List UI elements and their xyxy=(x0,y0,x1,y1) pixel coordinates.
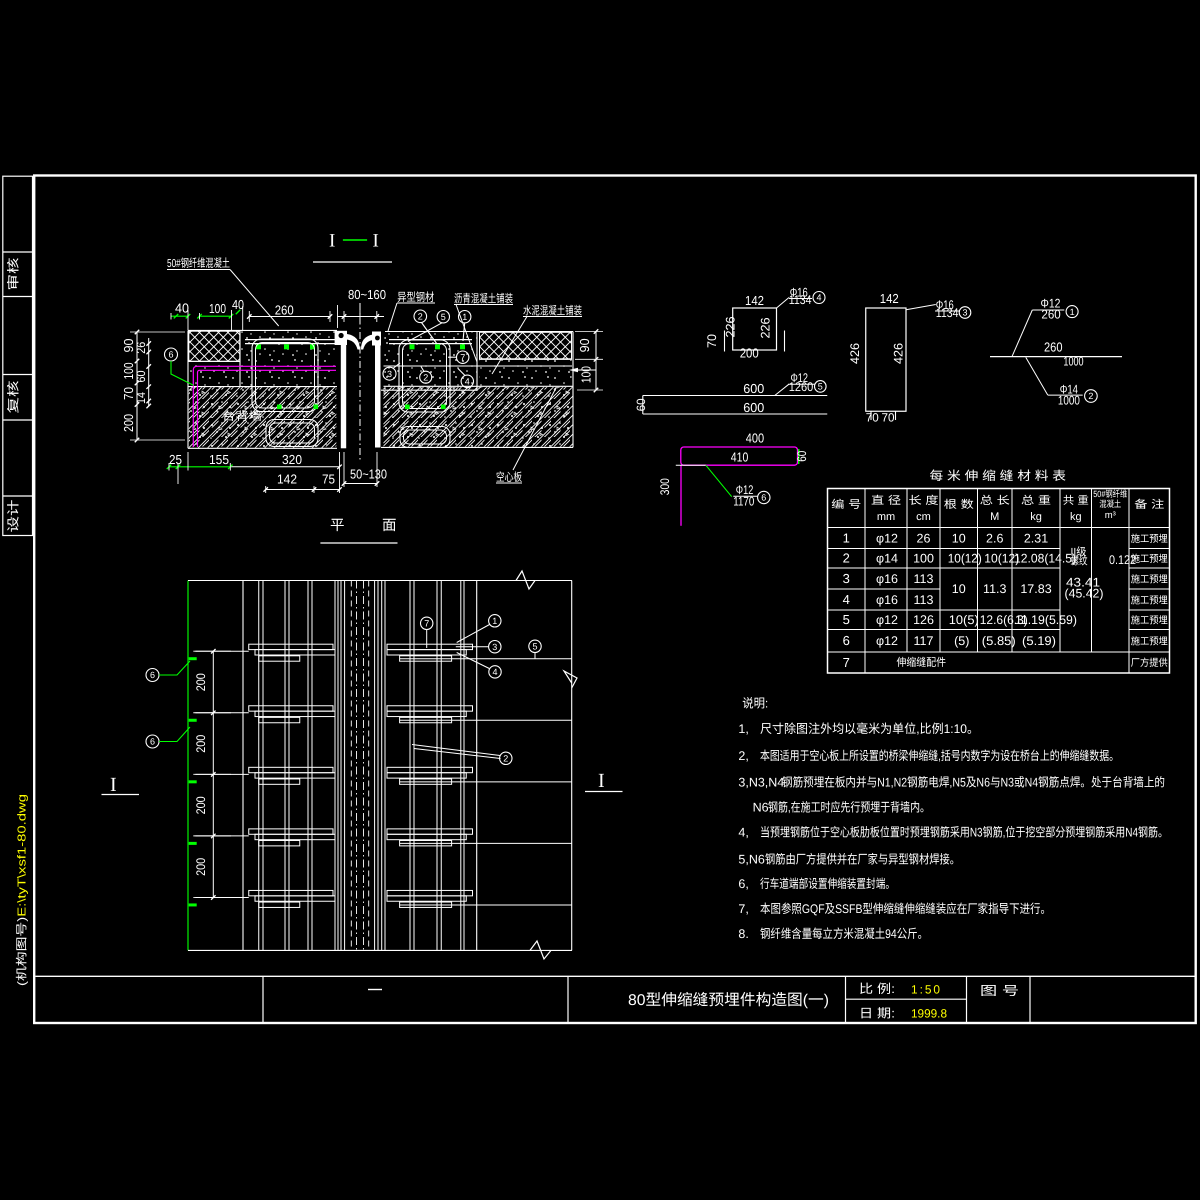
svg-text:90: 90 xyxy=(577,338,592,352)
svg-text:钢筋,在施工时应先行预埋于背墙内。: 钢筋,在施工时应先行预埋于背墙内。 xyxy=(768,801,930,815)
svg-text:260: 260 xyxy=(1044,340,1063,355)
svg-text:φ14: φ14 xyxy=(876,552,898,566)
svg-text:200: 200 xyxy=(194,858,208,876)
svg-text:施工预埋: 施工预埋 xyxy=(1131,615,1168,627)
svg-text:400: 400 xyxy=(746,431,764,446)
svg-text:80~160: 80~160 xyxy=(348,287,386,302)
svg-text:4: 4 xyxy=(492,667,497,677)
svg-text:6: 6 xyxy=(150,670,155,680)
svg-text:总 长: 总 长 xyxy=(980,494,1010,507)
svg-text:面: 面 xyxy=(382,518,397,534)
svg-text:142: 142 xyxy=(745,293,764,308)
svg-text:60: 60 xyxy=(795,451,809,462)
svg-text:螺纹: 螺纹 xyxy=(1071,555,1088,568)
svg-text:80型伸缩缝预埋件构造图(一): 80型伸缩缝预埋件构造图(一) xyxy=(628,991,829,1009)
svg-text:5: 5 xyxy=(818,382,823,392)
svg-text:6: 6 xyxy=(843,633,850,648)
svg-text:60: 60 xyxy=(634,398,648,411)
svg-text:410: 410 xyxy=(731,450,749,465)
svg-text:φ12: φ12 xyxy=(876,532,898,546)
svg-text:4: 4 xyxy=(843,592,850,607)
svg-text:2: 2 xyxy=(503,754,508,764)
svg-text:226: 226 xyxy=(724,316,738,337)
svg-text:1260: 1260 xyxy=(789,380,814,394)
svg-text:17.83: 17.83 xyxy=(1020,582,1051,596)
svg-text:水泥混凝土铺装: 水泥混凝土铺装 xyxy=(523,305,582,318)
svg-text:11.19(5.59): 11.19(5.59) xyxy=(1015,613,1077,627)
svg-text:(5.19): (5.19) xyxy=(1022,634,1056,648)
svg-text:异型钢材: 异型钢材 xyxy=(397,291,434,304)
svg-text:7,: 7, xyxy=(738,902,748,916)
svg-text:113: 113 xyxy=(914,572,934,586)
svg-text:1: 1 xyxy=(1070,307,1075,317)
svg-text:钢筋预埋在板内并与N1,N2钢筋电焊,N5及N6与N3或N4: 钢筋预埋在板内并与N1,N2钢筋电焊,N5及N6与N3或N4钢筋点焊。处于台背墙… xyxy=(782,776,1165,790)
svg-text:12.08(14.5): 12.08(14.5) xyxy=(1014,552,1076,566)
svg-text:126: 126 xyxy=(913,613,934,627)
svg-text:155: 155 xyxy=(209,452,229,467)
svg-text:空心板: 空心板 xyxy=(496,471,522,484)
svg-text:施工预埋: 施工预埋 xyxy=(1131,553,1168,565)
svg-text:6,: 6, xyxy=(738,877,748,891)
svg-text:2: 2 xyxy=(843,551,850,566)
svg-text:50~130: 50~130 xyxy=(350,467,387,482)
svg-text:5: 5 xyxy=(532,642,537,652)
svg-text:复核: 复核 xyxy=(7,380,21,414)
svg-text:14: 14 xyxy=(134,392,148,404)
svg-text:6: 6 xyxy=(150,737,155,747)
svg-text:总 重: 总 重 xyxy=(1021,494,1051,507)
svg-text:4: 4 xyxy=(465,377,470,387)
svg-text:2,: 2, xyxy=(738,749,748,763)
svg-text:50#钢纤维混凝土: 50#钢纤维混凝土 xyxy=(167,257,230,270)
svg-text:φ16: φ16 xyxy=(876,593,898,607)
svg-text:7: 7 xyxy=(460,352,465,362)
svg-text:审核: 审核 xyxy=(7,257,21,291)
svg-text:厂方提供: 厂方提供 xyxy=(1131,657,1168,669)
svg-text:本图参照GQF及SSFB型伸缩缝伸缩缝装应在厂家指导下进行。: 本图参照GQF及SSFB型伸缩缝伸缩缝装应在厂家指导下进行。 xyxy=(760,902,1051,916)
svg-text:260: 260 xyxy=(275,303,294,318)
svg-text:26: 26 xyxy=(134,341,148,353)
svg-text:(5): (5) xyxy=(954,634,969,648)
svg-text:40: 40 xyxy=(232,297,244,312)
svg-text:200: 200 xyxy=(194,735,208,753)
svg-text:11.3: 11.3 xyxy=(983,582,1006,596)
svg-text:施工预埋: 施工预埋 xyxy=(1131,573,1168,585)
svg-text:日 期:: 日 期: xyxy=(859,1007,895,1021)
svg-text:200: 200 xyxy=(194,673,208,691)
svg-text:1134: 1134 xyxy=(936,306,959,320)
svg-text:117: 117 xyxy=(914,634,934,648)
svg-text:M: M xyxy=(990,511,999,523)
svg-text:142: 142 xyxy=(277,472,297,487)
svg-text:7: 7 xyxy=(424,619,429,629)
svg-text:40: 40 xyxy=(175,301,189,316)
svg-text:142: 142 xyxy=(880,291,899,306)
svg-text:3,N3,N4: 3,N3,N4 xyxy=(738,776,784,790)
svg-text:I: I xyxy=(598,770,605,792)
svg-text:kg: kg xyxy=(1030,511,1042,523)
svg-text:100: 100 xyxy=(209,301,226,316)
svg-text:尺寸除图注外均以毫米为单位,比例1:10。: 尺寸除图注外均以毫米为单位,比例1:10。 xyxy=(760,722,979,736)
svg-text:长 度: 长 度 xyxy=(909,494,939,507)
svg-text:φ12: φ12 xyxy=(876,613,898,627)
svg-text:混凝土: 混凝土 xyxy=(1099,499,1121,509)
svg-text:根 数: 根 数 xyxy=(944,498,974,511)
svg-text:本图适用于空心板上所设置的桥梁伸缩缝,括号内数字为设在桥台上: 本图适用于空心板上所设置的桥梁伸缩缝,括号内数字为设在桥台上的伸缩缝数据。 xyxy=(760,749,1119,763)
svg-text:8.: 8. xyxy=(738,927,748,941)
svg-text:钢筋由厂方提供并在厂家与异型钢材焊接。: 钢筋由厂方提供并在厂家与异型钢材焊接。 xyxy=(765,852,960,866)
svg-text:4: 4 xyxy=(816,293,821,303)
svg-text:600: 600 xyxy=(743,400,764,415)
svg-text:3: 3 xyxy=(492,642,497,652)
svg-text:设计: 设计 xyxy=(7,500,21,533)
svg-text:600: 600 xyxy=(743,381,764,396)
svg-text:1:50: 1:50 xyxy=(911,983,942,997)
svg-text:I: I xyxy=(373,231,379,252)
svg-text:200: 200 xyxy=(121,414,136,432)
svg-text:113: 113 xyxy=(914,593,934,607)
svg-text:4,: 4, xyxy=(738,825,748,839)
svg-text:10: 10 xyxy=(952,532,966,546)
svg-text:2.31: 2.31 xyxy=(1024,532,1048,546)
svg-text:75: 75 xyxy=(322,472,335,487)
svg-text:1170: 1170 xyxy=(733,495,754,509)
svg-text:300: 300 xyxy=(658,478,672,495)
svg-text:2: 2 xyxy=(423,372,428,382)
svg-text:5: 5 xyxy=(843,612,850,627)
svg-text:编 号: 编 号 xyxy=(831,498,861,511)
svg-text:70: 70 xyxy=(705,334,719,348)
svg-text:行车道端部设置伸缩装置封端。: 行车道端部设置伸缩装置封端。 xyxy=(760,877,895,891)
svg-text:1: 1 xyxy=(843,531,850,546)
svg-text:10(12): 10(12) xyxy=(948,552,982,566)
svg-text:2.6: 2.6 xyxy=(986,532,1003,546)
svg-text:平: 平 xyxy=(330,518,345,534)
svg-text:直 径: 直 径 xyxy=(871,494,901,507)
svg-text:10(5): 10(5) xyxy=(949,613,979,627)
svg-text:mm: mm xyxy=(877,511,895,523)
svg-text:每 米 伸 缩 缝 材 料 表: 每 米 伸 缩 缝 材 料 表 xyxy=(930,469,1067,483)
svg-text:200: 200 xyxy=(740,346,759,361)
svg-text:N6: N6 xyxy=(753,801,769,815)
svg-text:kg: kg xyxy=(1070,511,1082,523)
svg-text:1: 1 xyxy=(492,616,497,626)
svg-text:50#钢纤维: 50#钢纤维 xyxy=(1093,489,1127,499)
svg-text:I: I xyxy=(110,774,117,796)
svg-text:1000: 1000 xyxy=(1063,355,1083,369)
svg-text:m³: m³ xyxy=(1105,510,1116,521)
svg-text:6: 6 xyxy=(761,493,766,503)
svg-text:26: 26 xyxy=(917,532,931,546)
svg-text:图 号: 图 号 xyxy=(980,984,1019,998)
svg-text:5: 5 xyxy=(441,312,446,322)
svg-text:当预埋钢筋位于空心板肋板位置时预埋钢筋采用N3钢筋,位于挖空: 当预埋钢筋位于空心板肋板位置时预埋钢筋采用N3钢筋,位于挖空部分预埋钢筋采用N4… xyxy=(760,825,1168,839)
svg-text:沥青混凝土铺装: 沥青混凝土铺装 xyxy=(454,293,513,306)
svg-text:200: 200 xyxy=(194,796,208,814)
svg-text:施工预埋: 施工预埋 xyxy=(1131,594,1168,606)
svg-text:cm: cm xyxy=(916,511,931,523)
svg-text:260: 260 xyxy=(1041,308,1060,322)
svg-text:备 注: 备 注 xyxy=(1134,498,1164,511)
svg-text:3: 3 xyxy=(962,308,967,318)
svg-text:施工预埋: 施工预埋 xyxy=(1131,636,1168,648)
svg-text:I: I xyxy=(329,231,335,252)
svg-text:5,N6: 5,N6 xyxy=(738,852,764,866)
svg-text:(5.85): (5.85) xyxy=(982,634,1016,648)
svg-text:1000: 1000 xyxy=(1058,394,1080,408)
svg-text:3: 3 xyxy=(387,369,392,379)
svg-text:1,: 1, xyxy=(738,722,748,736)
svg-text:226: 226 xyxy=(759,317,773,338)
svg-text:φ16: φ16 xyxy=(876,572,898,586)
svg-text:伸缩缝配件: 伸缩缝配件 xyxy=(897,656,947,669)
svg-text:(45.42): (45.42) xyxy=(1065,587,1104,601)
svg-text:320: 320 xyxy=(282,452,302,467)
svg-text:2: 2 xyxy=(1088,391,1093,401)
svg-text:3: 3 xyxy=(843,571,850,586)
svg-text:施工预埋: 施工预埋 xyxy=(1131,533,1168,545)
svg-text:共 重: 共 重 xyxy=(1063,494,1089,507)
svg-text:60: 60 xyxy=(134,370,148,382)
svg-text:2: 2 xyxy=(418,312,423,322)
svg-text:10: 10 xyxy=(952,582,966,596)
svg-text:比 例:: 比 例: xyxy=(859,982,895,996)
svg-text:426: 426 xyxy=(892,343,906,364)
svg-text:426: 426 xyxy=(848,343,862,364)
svg-text:7: 7 xyxy=(843,655,850,670)
svg-text:1134: 1134 xyxy=(789,293,812,307)
svg-text:1999.8: 1999.8 xyxy=(911,1007,947,1021)
svg-text:说明:: 说明: xyxy=(742,697,768,711)
svg-text:φ12: φ12 xyxy=(876,634,898,648)
svg-text:6: 6 xyxy=(168,350,173,360)
svg-text:100: 100 xyxy=(579,366,594,383)
svg-text:70: 70 xyxy=(866,411,879,425)
svg-text:100: 100 xyxy=(913,552,934,566)
svg-text:钢纤维含量每立方米混凝土94公斤。: 钢纤维含量每立方米混凝土94公斤。 xyxy=(760,927,928,941)
svg-text:1: 1 xyxy=(462,312,467,322)
svg-text:(机构图号)E:\tyT\xsf1-80.dwg: (机构图号)E:\tyT\xsf1-80.dwg xyxy=(16,794,29,986)
svg-text:70: 70 xyxy=(882,411,895,425)
svg-text:台背墙: 台背墙 xyxy=(222,410,263,423)
